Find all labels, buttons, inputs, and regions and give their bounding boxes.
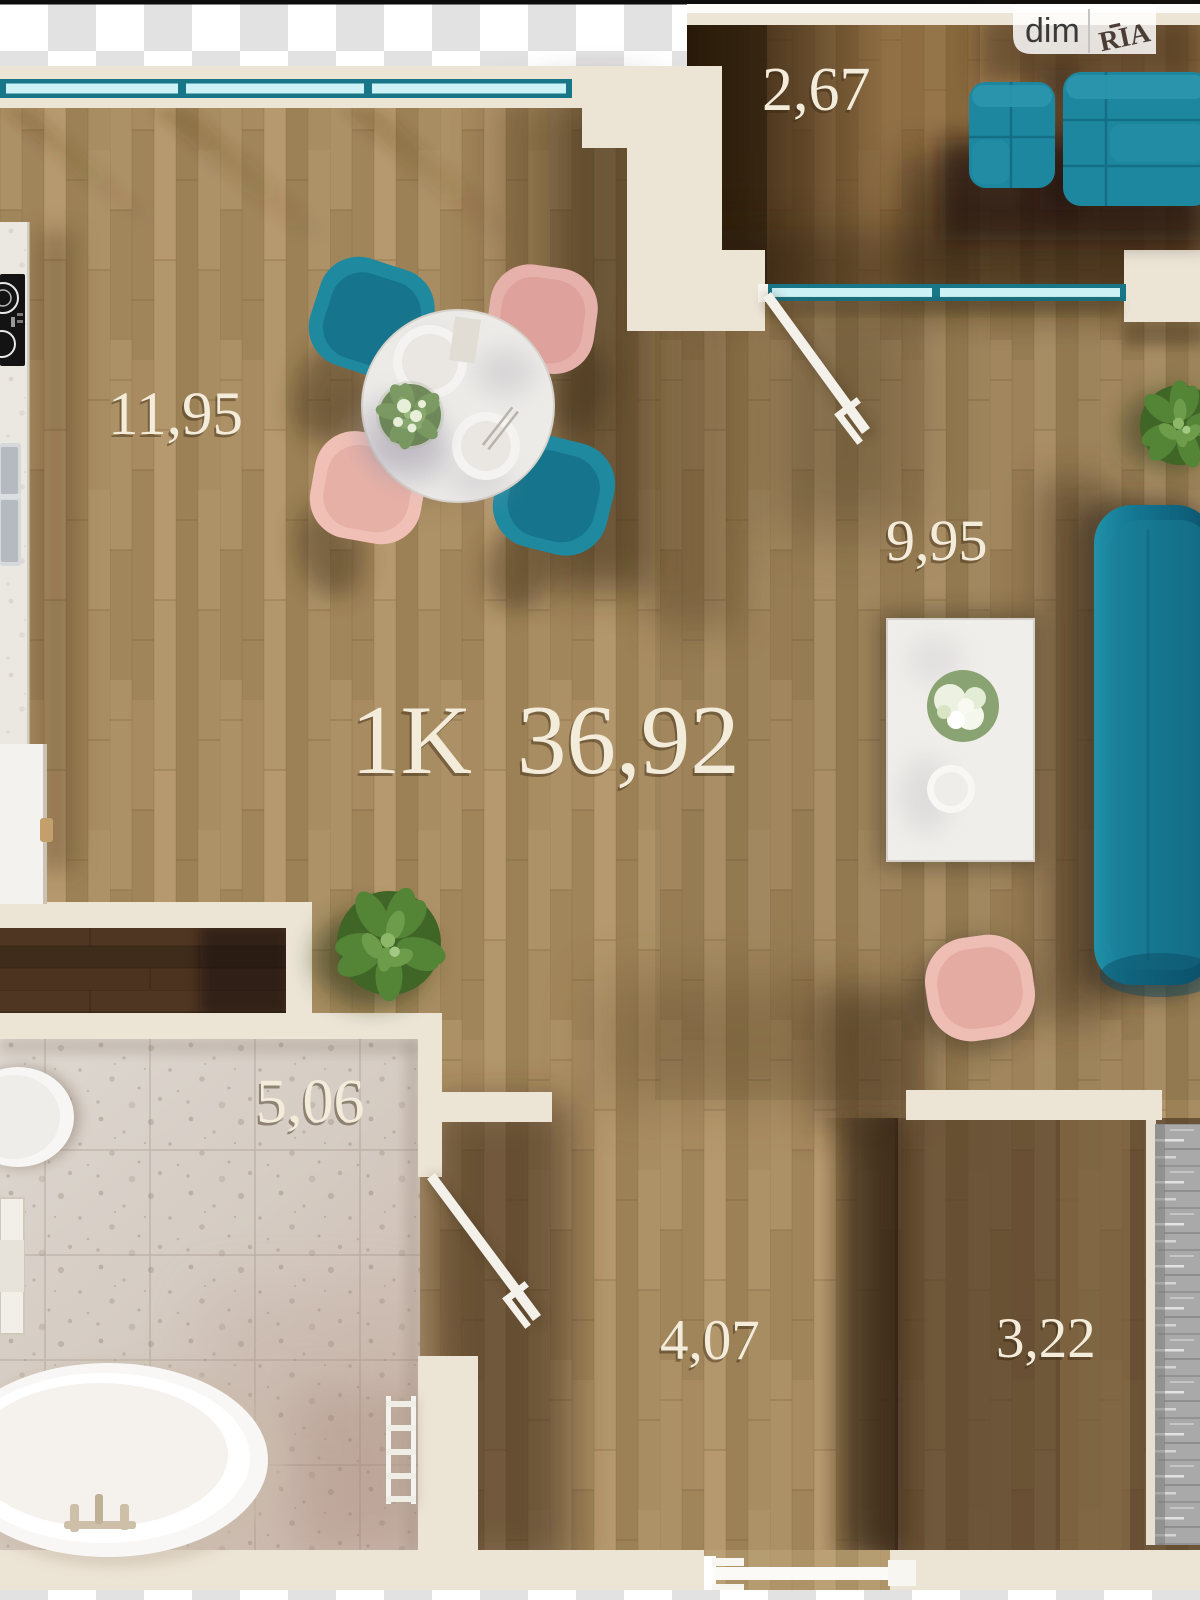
svg-text:1K: 1K	[351, 686, 472, 795]
svg-text:3,22: 3,22	[996, 1307, 1096, 1370]
svg-text:2,67: 2,67	[762, 56, 871, 124]
svg-text:11,95: 11,95	[108, 381, 243, 448]
svg-text:9,95: 9,95	[886, 508, 988, 573]
svg-text:dim: dim	[1025, 12, 1080, 50]
svg-text:4,07: 4,07	[660, 1309, 760, 1372]
svg-text:36,92: 36,92	[517, 686, 740, 795]
svg-text:5,06: 5,06	[256, 1068, 365, 1136]
